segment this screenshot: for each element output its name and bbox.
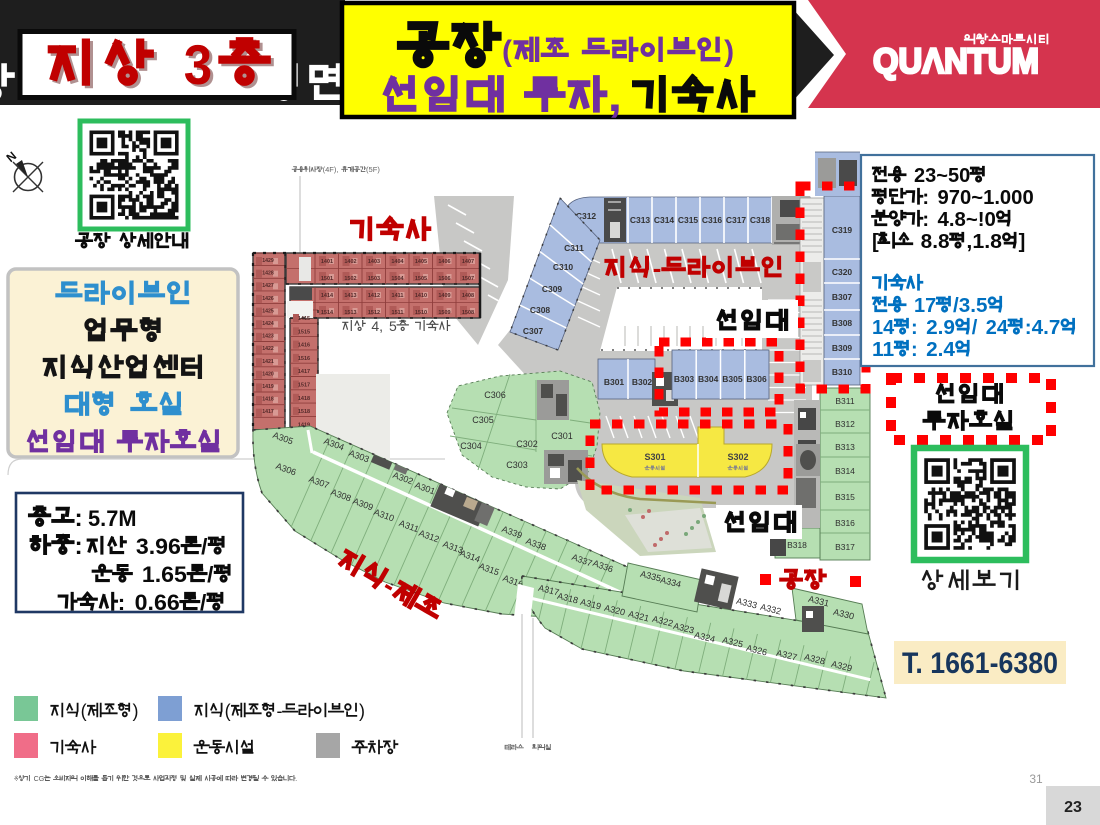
- svg-text::: :: [922, 209, 929, 231]
- svg-text:1422: 1422: [262, 346, 274, 352]
- svg-text:1412: 1412: [368, 293, 380, 299]
- svg-text:1510: 1510: [415, 310, 427, 316]
- svg-text:1402: 1402: [344, 259, 356, 265]
- svg-text:1518: 1518: [298, 409, 310, 415]
- svg-text:1514: 1514: [321, 310, 334, 316]
- svg-text:C304: C304: [460, 441, 482, 451]
- svg-text:3.96: 3.96: [136, 534, 181, 559]
- svg-text:1401: 1401: [321, 259, 333, 265]
- svg-text:C309: C309: [542, 284, 563, 294]
- svg-text:(: (: [81, 701, 87, 721]
- svg-text:C301: C301: [551, 431, 573, 441]
- svg-text:C306: C306: [484, 390, 506, 400]
- svg-text:B315: B315: [835, 492, 855, 502]
- svg-text:C303: C303: [506, 460, 528, 470]
- svg-text::: :: [922, 187, 929, 209]
- svg-text:B309: B309: [832, 343, 853, 353]
- svg-text:[: [: [872, 231, 879, 253]
- svg-text:S302: S302: [727, 452, 748, 462]
- svg-text:.: .: [295, 774, 297, 783]
- svg-text:C317: C317: [726, 215, 747, 225]
- svg-text:1420: 1420: [262, 371, 274, 377]
- svg-text:1503: 1503: [368, 276, 380, 282]
- svg-text:1408: 1408: [462, 293, 474, 299]
- svg-text:C319: C319: [832, 225, 853, 235]
- svg-text:8.8: 8.8: [921, 231, 950, 253]
- svg-text::: :: [75, 505, 83, 532]
- svg-text:1513: 1513: [344, 310, 356, 316]
- svg-text:B305: B305: [722, 374, 743, 384]
- svg-text:17: 17: [914, 295, 936, 317]
- svg-text:B306: B306: [746, 374, 767, 384]
- svg-text:B318: B318: [787, 540, 807, 550]
- svg-text:1511: 1511: [392, 310, 404, 316]
- svg-text:24: 24: [986, 317, 1009, 339]
- svg-text:B311: B311: [835, 396, 854, 406]
- svg-text:1507: 1507: [462, 276, 474, 282]
- svg-text:31: 31: [1029, 772, 1043, 786]
- svg-text::: :: [75, 533, 83, 560]
- svg-text:/: /: [207, 562, 214, 587]
- svg-text:1429: 1429: [262, 258, 274, 264]
- svg-text:1516: 1516: [298, 356, 310, 362]
- svg-text:-: -: [653, 253, 662, 283]
- svg-text:1414: 1414: [321, 293, 334, 299]
- svg-text:1418: 1418: [298, 396, 310, 402]
- svg-text:C310: C310: [553, 262, 574, 272]
- svg-text:,: ,: [608, 72, 623, 121]
- svg-text:C315: C315: [678, 215, 699, 225]
- svg-text:1410: 1410: [415, 293, 427, 299]
- svg-text:T. 1661-6380: T. 1661-6380: [902, 647, 1058, 680]
- svg-text:B316: B316: [835, 518, 855, 528]
- svg-text:,1.8: ,1.8: [966, 231, 1002, 253]
- svg-text:B301: B301: [604, 377, 625, 387]
- svg-text:1417: 1417: [262, 409, 274, 415]
- svg-text:1423: 1423: [262, 334, 274, 340]
- svg-text:23~50: 23~50: [914, 165, 970, 187]
- svg-text:970~1.000: 970~1.000: [938, 187, 1034, 209]
- svg-text:1406: 1406: [438, 259, 450, 265]
- svg-text:B312: B312: [835, 419, 855, 429]
- svg-text:/: /: [201, 534, 208, 559]
- svg-text:※: ※: [14, 774, 19, 783]
- svg-text:2.4: 2.4: [926, 339, 956, 361]
- svg-text:23: 23: [1064, 799, 1082, 816]
- svg-text:1403: 1403: [368, 259, 380, 265]
- svg-text:1515: 1515: [298, 329, 310, 335]
- svg-text:1517: 1517: [298, 383, 310, 389]
- svg-text:1404: 1404: [391, 259, 404, 265]
- svg-text:1411: 1411: [392, 293, 404, 299]
- svg-text:11: 11: [872, 339, 894, 361]
- svg-text:C302: C302: [516, 439, 538, 449]
- svg-text:(4F),: (4F),: [323, 165, 339, 174]
- svg-text::: :: [911, 317, 918, 339]
- svg-text:1416: 1416: [298, 343, 310, 349]
- svg-text:C311: C311: [564, 243, 584, 253]
- svg-text:B314: B314: [835, 466, 855, 476]
- svg-text:B317: B317: [835, 542, 855, 552]
- svg-text:1508: 1508: [462, 310, 474, 316]
- svg-text:C314: C314: [654, 215, 675, 225]
- svg-text:4.8~!0: 4.8~!0: [938, 209, 996, 231]
- svg-text:(: (: [225, 701, 231, 721]
- svg-text:1.65: 1.65: [142, 562, 187, 587]
- svg-text:C307: C307: [523, 326, 544, 336]
- svg-text:1502: 1502: [344, 276, 356, 282]
- svg-text::4.7: :4.7: [1025, 317, 1061, 339]
- svg-text:/: /: [972, 317, 978, 339]
- svg-text:1419: 1419: [262, 384, 274, 390]
- svg-text:C308: C308: [530, 305, 551, 315]
- svg-text:B313: B313: [835, 442, 855, 452]
- svg-text:1424: 1424: [262, 321, 274, 327]
- svg-text:B307: B307: [832, 292, 853, 302]
- svg-text:1425: 1425: [262, 308, 274, 314]
- svg-text:4,: 4,: [371, 318, 383, 334]
- svg-text:): ): [359, 701, 365, 721]
- svg-text:B308: B308: [832, 318, 853, 328]
- svg-text:1407: 1407: [462, 259, 474, 265]
- svg-text:1512: 1512: [368, 310, 380, 316]
- svg-text:1417: 1417: [298, 369, 310, 375]
- svg-text:S301: S301: [644, 452, 665, 462]
- svg-text:C318: C318: [750, 215, 771, 225]
- svg-text:B303: B303: [674, 374, 695, 384]
- svg-text:CG: CG: [34, 774, 45, 783]
- svg-text:1501: 1501: [321, 276, 333, 282]
- svg-text:1509: 1509: [438, 310, 450, 316]
- svg-text:B302: B302: [632, 377, 653, 387]
- svg-text:1506: 1506: [438, 276, 450, 282]
- svg-text:1505: 1505: [415, 276, 427, 282]
- svg-text:B304: B304: [698, 374, 719, 384]
- svg-text:]: ]: [1019, 231, 1026, 253]
- svg-text:(: (: [502, 35, 512, 68]
- svg-text:1415: 1415: [298, 316, 310, 322]
- svg-text:1413: 1413: [344, 293, 356, 299]
- svg-text:): ): [724, 35, 734, 68]
- svg-text:-: -: [277, 701, 283, 721]
- svg-text:C305: C305: [472, 415, 494, 425]
- svg-text:): ): [133, 701, 139, 721]
- svg-text:(5F): (5F): [366, 165, 380, 174]
- svg-text:1504: 1504: [391, 276, 404, 282]
- svg-text:2.9: 2.9: [926, 317, 955, 339]
- svg-text:/3.5: /3.5: [953, 295, 988, 317]
- svg-text:1418: 1418: [262, 397, 274, 403]
- svg-text:/: /: [200, 590, 207, 615]
- svg-text:1421: 1421: [262, 359, 274, 365]
- svg-text:14: 14: [872, 317, 895, 339]
- svg-text:3: 3: [184, 33, 215, 96]
- svg-text::: :: [911, 339, 918, 361]
- svg-text:5: 5: [389, 318, 397, 334]
- svg-text:0.66: 0.66: [135, 590, 180, 615]
- svg-text:C320: C320: [832, 267, 853, 277]
- svg-text:1427: 1427: [262, 283, 274, 289]
- svg-text:1405: 1405: [415, 259, 427, 265]
- svg-text:C316: C316: [702, 215, 723, 225]
- svg-text:QUΛNTUM: QUΛNTUM: [873, 42, 1039, 81]
- svg-text:1409: 1409: [438, 293, 450, 299]
- svg-text:5.7M: 5.7M: [88, 506, 137, 531]
- svg-text:1428: 1428: [262, 271, 274, 277]
- svg-text:C313: C313: [630, 215, 651, 225]
- svg-text::: :: [118, 590, 126, 615]
- svg-text:1426: 1426: [262, 296, 274, 302]
- svg-text:B310: B310: [832, 367, 853, 377]
